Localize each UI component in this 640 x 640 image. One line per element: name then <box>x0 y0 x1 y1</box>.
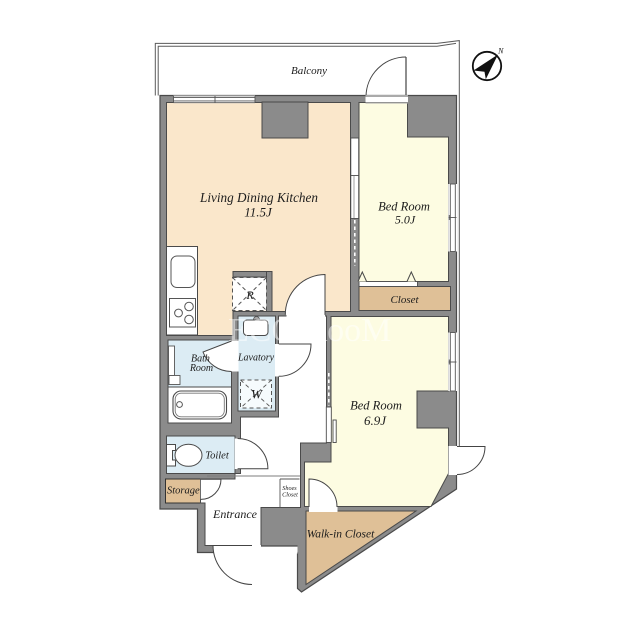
svg-text:Bed Room: Bed Room <box>378 200 430 214</box>
svg-text:N: N <box>497 47 504 56</box>
svg-text:Closet: Closet <box>282 492 298 499</box>
svg-text:6.9J: 6.9J <box>364 413 387 428</box>
svg-text:Living Dining Kitchen: Living Dining Kitchen <box>199 190 318 205</box>
svg-text:11.5J: 11.5J <box>244 205 273 220</box>
svg-text:Storage: Storage <box>167 486 200 497</box>
svg-text:5.0J: 5.0J <box>395 213 416 227</box>
svg-text:R: R <box>245 288 254 302</box>
svg-text:Bed Room: Bed Room <box>350 399 402 413</box>
svg-text:Balcony: Balcony <box>291 65 327 77</box>
svg-text:Closet: Closet <box>390 294 419 306</box>
svg-text:W: W <box>251 387 263 402</box>
svg-text:Entrance: Entrance <box>212 507 258 521</box>
svg-text:Walk-in Closet: Walk-in Closet <box>307 529 375 541</box>
svg-text:Room: Room <box>189 363 213 374</box>
svg-text:Toilet: Toilet <box>205 451 230 462</box>
svg-text:Lavatory: Lavatory <box>237 353 275 364</box>
svg-text:ECO RooM: ECO RooM <box>228 312 391 349</box>
